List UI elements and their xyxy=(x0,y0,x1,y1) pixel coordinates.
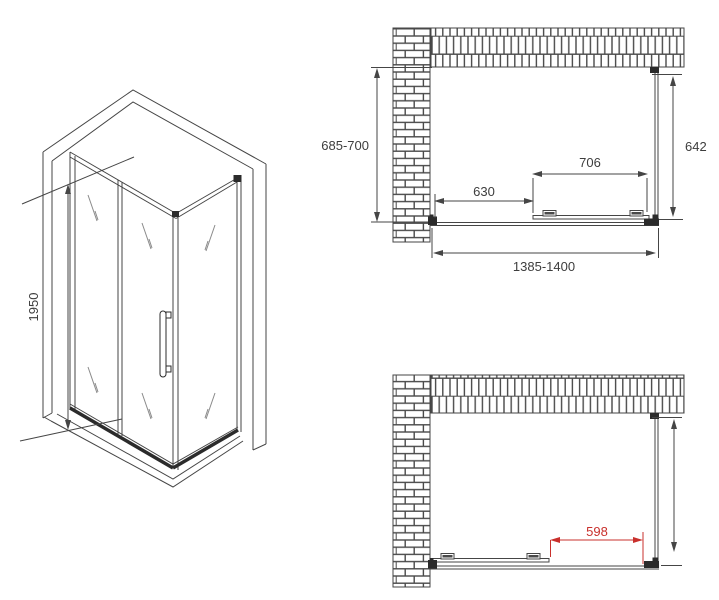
return-glass-panel xyxy=(650,67,659,222)
dimension-inner-depth: 642 xyxy=(652,75,707,218)
depth-dimension-label: 685-700 xyxy=(321,138,369,153)
brick-wall-side xyxy=(393,28,430,242)
dimension-opening-width: 598 xyxy=(550,524,643,564)
door-roller xyxy=(630,211,643,217)
room-corner-walls xyxy=(43,90,266,450)
brick-wall-back xyxy=(431,28,684,67)
corner-bracket xyxy=(644,558,659,569)
door-roller xyxy=(543,211,556,217)
dimension-overall-width: 1385-1400 xyxy=(432,228,659,274)
dimension-1950: 1950 xyxy=(20,157,134,441)
bottom-plan-view: 598 xyxy=(393,375,684,587)
brick-wall-back xyxy=(431,375,684,413)
inner-depth-dimension-label: 642 xyxy=(685,139,707,154)
technical-drawing: 1950 xyxy=(0,0,719,600)
front-rail-and-door-open xyxy=(428,554,682,570)
dimension-side-width: 630 xyxy=(434,178,534,218)
dimension-door-width: 706 xyxy=(532,155,648,212)
opening-width-dimension-label: 598 xyxy=(586,524,608,539)
shower-enclosure-drawing: 1950 xyxy=(0,0,719,600)
return-glass-panel xyxy=(650,413,659,563)
door-roller xyxy=(441,554,454,560)
brick-wall-side xyxy=(393,375,430,587)
isometric-view: 1950 xyxy=(20,90,266,487)
shower-tray xyxy=(44,404,243,487)
top-plan-view: 685-700 642 630 706 xyxy=(321,28,706,274)
door-handle xyxy=(160,311,171,377)
height-dimension-label: 1950 xyxy=(26,293,41,322)
side-width-dimension-label: 630 xyxy=(473,184,495,199)
overall-width-dimension-label: 1385-1400 xyxy=(513,259,575,274)
door-roller xyxy=(527,554,540,560)
dimension-right-unlabeled xyxy=(652,418,682,553)
door-width-dimension-label: 706 xyxy=(579,155,601,170)
glass-shine-marks xyxy=(88,195,215,419)
front-rail-and-door xyxy=(428,211,683,226)
